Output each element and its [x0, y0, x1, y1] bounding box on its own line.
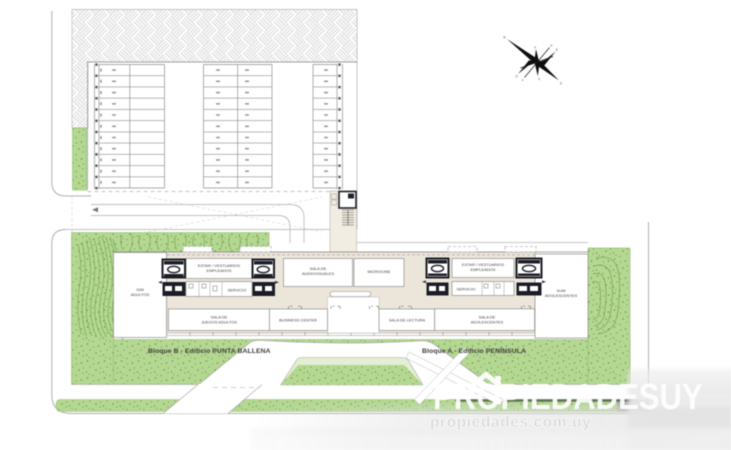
svg-text:Bloque B - Edificio PUNTA BALL: Bloque B - Edificio PUNTA BALLENA	[148, 348, 271, 355]
svg-text:E: E	[556, 48, 558, 52]
svg-text:SERVICIO: SERVICIO	[227, 288, 246, 293]
svg-text:n: n	[534, 46, 536, 50]
svg-text:JUEGOS ADULTOS: JUEGOS ADULTOS	[201, 320, 237, 325]
svg-text:MICROCINE: MICROCINE	[368, 269, 391, 274]
svg-text:BUSINESS CENTER: BUSINESS CENTER	[279, 318, 317, 323]
svg-text:S: S	[560, 82, 562, 86]
svg-text:AUDIOVISUALES: AUDIOVISUALES	[302, 271, 335, 276]
svg-text:ADOLESCENTES: ADOLESCENTES	[471, 320, 504, 325]
svg-text:SALA DE LECTURA: SALA DE LECTURA	[389, 318, 426, 323]
svg-text:ADOLESCENTES: ADOLESCENTES	[545, 293, 578, 298]
svg-text:o: o	[522, 78, 524, 82]
svg-text:EMPLEADOS: EMPLEADOS	[471, 267, 496, 272]
svg-text:e: e	[551, 44, 553, 48]
svg-text:EMPLEADOS: EMPLEADOS	[207, 268, 232, 273]
svg-text:SERVICIO: SERVICIO	[456, 287, 475, 292]
svg-text:ADULTOS: ADULTOS	[131, 292, 150, 297]
svg-text:propiedades.com.uy: propiedades.com.uy	[430, 414, 591, 431]
svg-text:Bloque A - Edificio PENÍNSULA: Bloque A - Edificio PENÍNSULA	[422, 346, 526, 355]
